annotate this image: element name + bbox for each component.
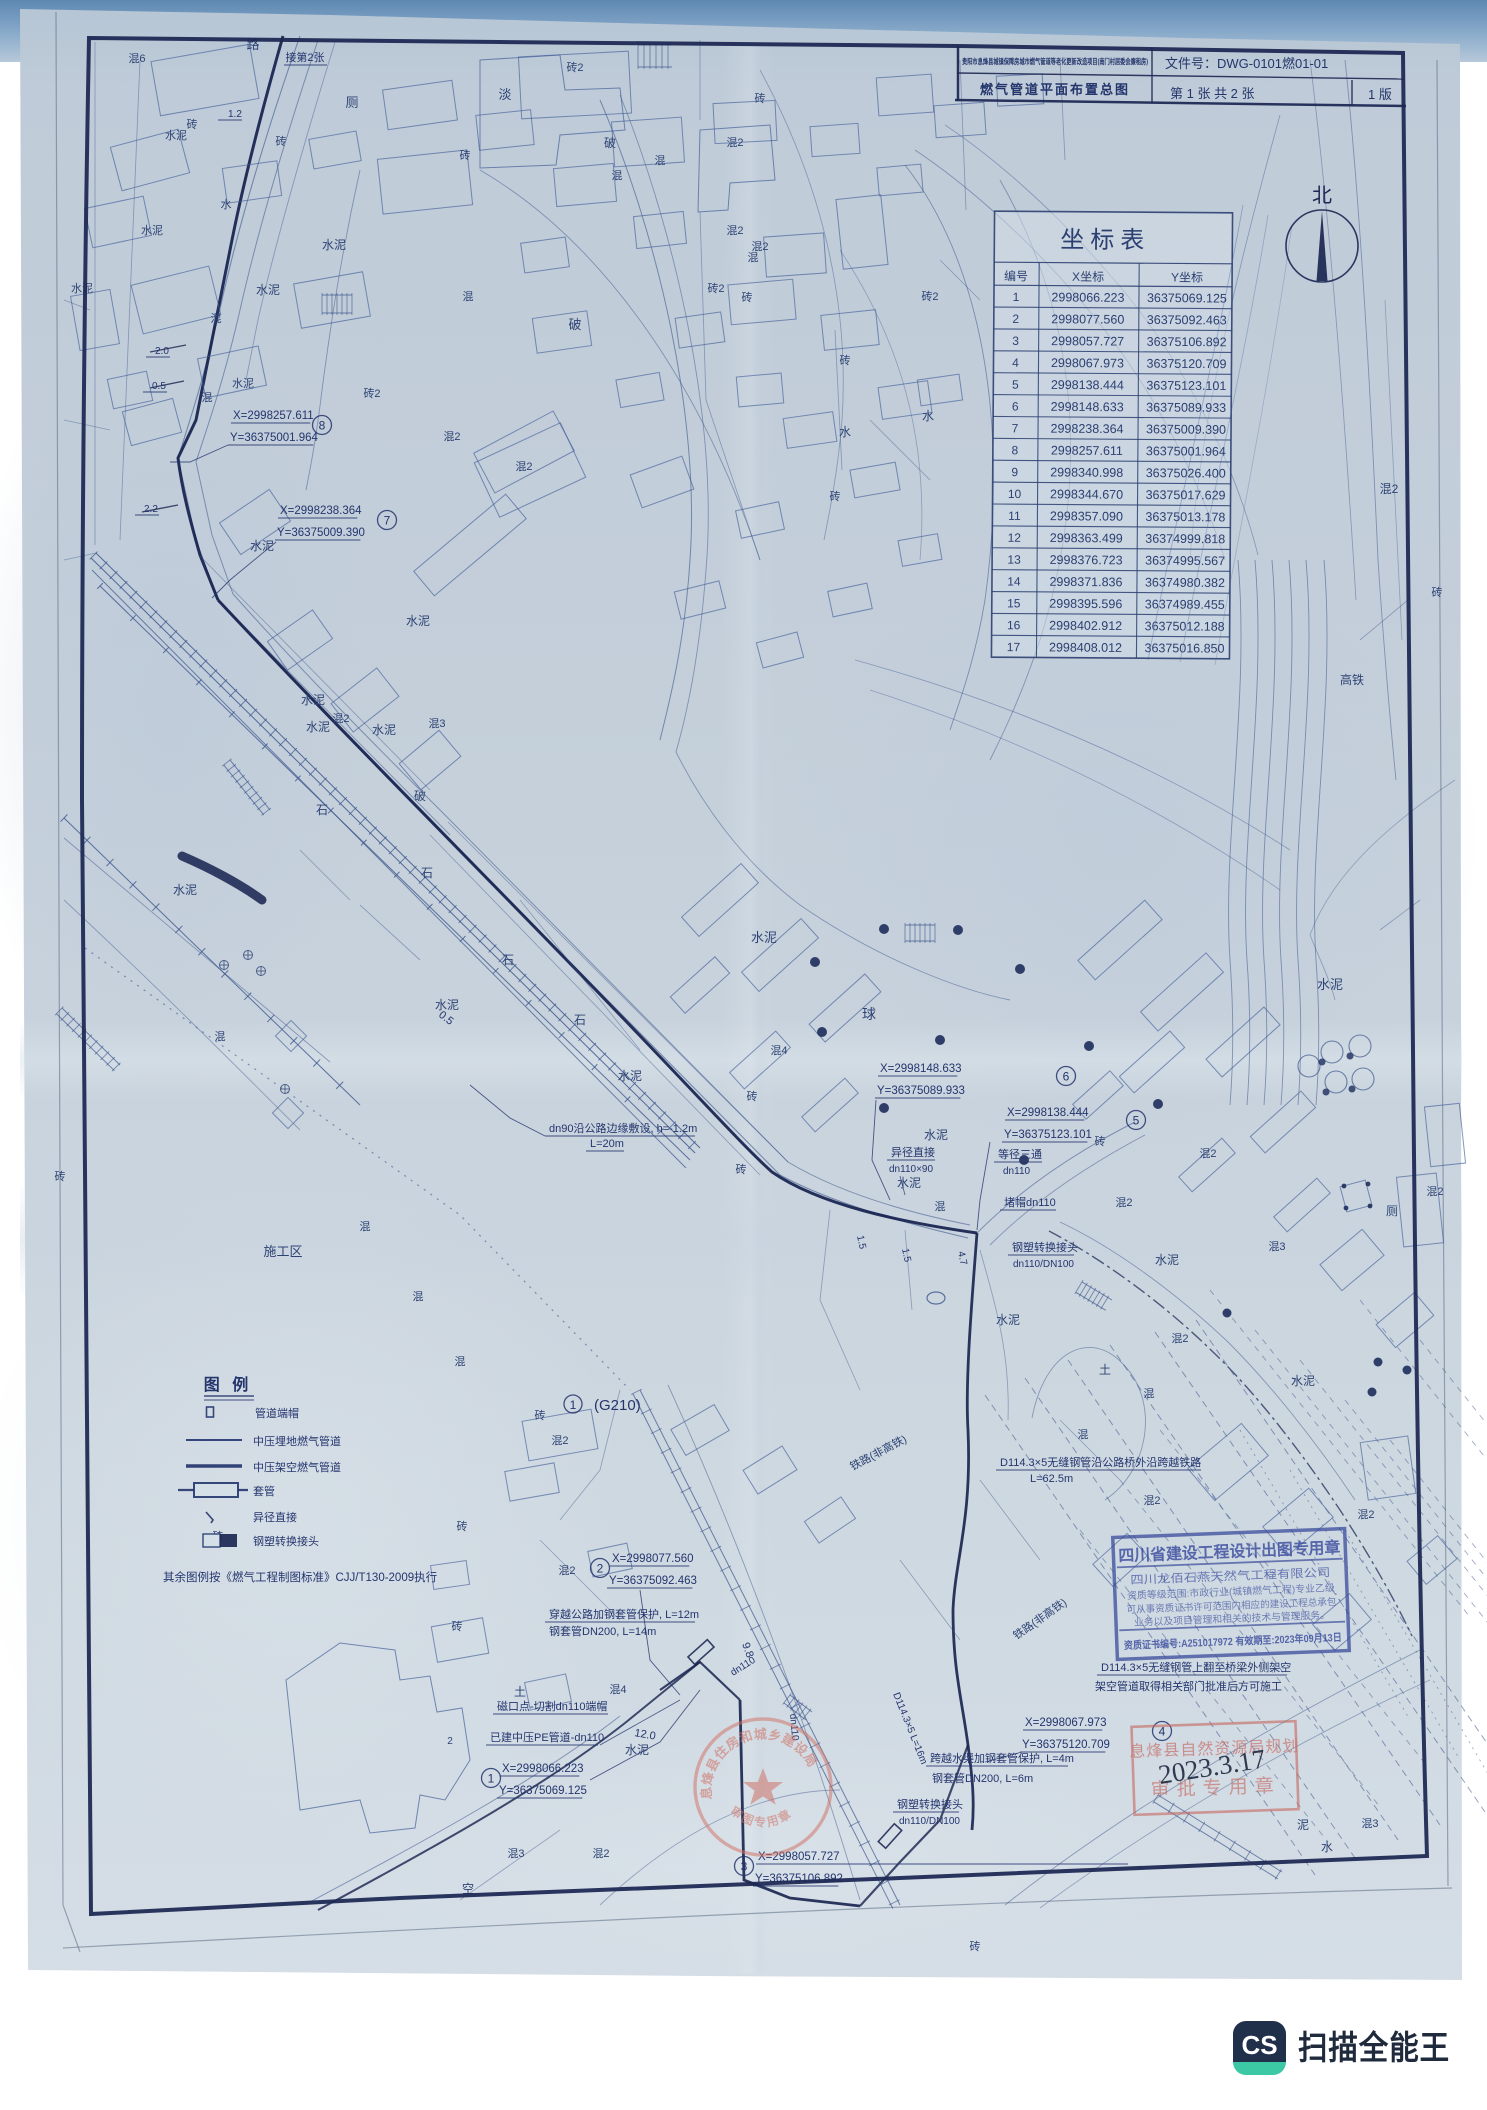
svg-text:X=2998066.223: X=2998066.223 xyxy=(502,1763,584,1775)
svg-text:2998408.012: 2998408.012 xyxy=(1049,640,1122,655)
svg-text:L=20m: L=20m xyxy=(590,1138,624,1150)
svg-text:8: 8 xyxy=(1011,443,1018,457)
svg-text:土: 土 xyxy=(1099,1363,1111,1377)
svg-text:混2: 混2 xyxy=(443,430,460,443)
svg-text:砖: 砖 xyxy=(755,91,766,105)
svg-text:厕: 厕 xyxy=(345,95,358,110)
svg-text:13: 13 xyxy=(1007,553,1021,567)
svg-text:1: 1 xyxy=(570,1398,577,1412)
svg-text:套管: 套管 xyxy=(253,1484,275,1498)
svg-text:X=2998057.727: X=2998057.727 xyxy=(758,1851,840,1863)
svg-text:Y=36375089.933: Y=36375089.933 xyxy=(877,1085,965,1097)
svg-text:文件号：DWG-0101燃01-01: 文件号：DWG-0101燃01-01 xyxy=(1165,56,1328,71)
svg-text:12: 12 xyxy=(1008,531,1022,545)
svg-text:钢塑转换接头: 钢塑转换接头 xyxy=(897,1797,963,1811)
svg-text:砖: 砖 xyxy=(452,1619,463,1633)
svg-text:混: 混 xyxy=(360,1220,371,1233)
svg-text:2998376.723: 2998376.723 xyxy=(1050,553,1123,568)
svg-text:36375012.188: 36375012.188 xyxy=(1145,619,1225,634)
svg-text:水泥: 水泥 xyxy=(256,283,280,297)
svg-text:2.2: 2.2 xyxy=(144,504,158,515)
svg-text:2998067.973: 2998067.973 xyxy=(1051,356,1124,371)
svg-text:2998371.836: 2998371.836 xyxy=(1049,575,1122,590)
svg-text:1.2: 1.2 xyxy=(228,109,242,120)
svg-text:跨越水渠加钢套管保护, L=4m: 跨越水渠加钢套管保护, L=4m xyxy=(930,1751,1074,1765)
svg-text:淡: 淡 xyxy=(498,87,511,102)
svg-text:2998257.611: 2998257.611 xyxy=(1051,444,1123,459)
svg-text:2998363.499: 2998363.499 xyxy=(1050,531,1123,546)
svg-text:已建中压PE管道-dn110: 已建中压PE管道-dn110 xyxy=(490,1730,604,1744)
svg-text:36374980.382: 36374980.382 xyxy=(1145,575,1225,590)
svg-text:2998238.364: 2998238.364 xyxy=(1050,422,1123,437)
svg-text:36375013.178: 36375013.178 xyxy=(1145,510,1225,525)
svg-text:10: 10 xyxy=(1008,487,1022,501)
svg-text:X=2998067.973: X=2998067.973 xyxy=(1025,1717,1107,1729)
svg-text:水: 水 xyxy=(922,409,934,423)
svg-text:混3: 混3 xyxy=(428,717,445,730)
svg-text:砖2: 砖2 xyxy=(707,281,724,295)
svg-text:磁口点-切割dn110端帽: 磁口点-切割dn110端帽 xyxy=(497,1699,607,1713)
svg-text:水泥: 水泥 xyxy=(232,377,254,390)
svg-text:7: 7 xyxy=(384,514,391,528)
svg-text:2998148.633: 2998148.633 xyxy=(1051,400,1124,415)
svg-text:水泥: 水泥 xyxy=(141,224,163,237)
svg-text:架空管道取得相关部门批准后方可施工: 架空管道取得相关部门批准后方可施工 xyxy=(1095,1679,1282,1693)
svg-text:水泥: 水泥 xyxy=(372,723,396,737)
svg-text:砖: 砖 xyxy=(535,1408,546,1422)
svg-text:6: 6 xyxy=(1012,399,1019,413)
svg-text:36375001.964: 36375001.964 xyxy=(1146,444,1226,459)
svg-text:36375009.390: 36375009.390 xyxy=(1146,422,1226,437)
svg-text:0.5: 0.5 xyxy=(152,381,166,392)
svg-text:混2: 混2 xyxy=(515,460,532,473)
svg-text:其余图例按《燃气工程制图标准》CJJ/T130-2009执行: 其余图例按《燃气工程制图标准》CJJ/T130-2009执行 xyxy=(163,1570,437,1584)
svg-text:砖: 砖 xyxy=(970,1939,981,1953)
svg-text:水泥: 水泥 xyxy=(173,883,197,897)
svg-text:14: 14 xyxy=(1007,574,1021,588)
svg-text:砖: 砖 xyxy=(1095,1134,1106,1148)
svg-text:砖2: 砖2 xyxy=(566,60,583,74)
svg-text:土: 土 xyxy=(514,1685,526,1699)
svg-text:管道端帽: 管道端帽 xyxy=(255,1406,299,1420)
svg-text:混: 混 xyxy=(1078,1428,1089,1441)
svg-text:坐标表: 坐标表 xyxy=(1060,227,1150,255)
svg-text:水泥: 水泥 xyxy=(71,282,93,295)
svg-text:2998395.596: 2998395.596 xyxy=(1049,597,1122,612)
svg-text:7: 7 xyxy=(1012,421,1019,435)
svg-text:5: 5 xyxy=(1012,378,1019,392)
svg-text:水泥: 水泥 xyxy=(301,693,325,707)
svg-text:水: 水 xyxy=(221,198,232,211)
svg-text:8: 8 xyxy=(319,419,326,433)
svg-text:水泥: 水泥 xyxy=(322,238,346,252)
svg-text:贵阳市息烽县城镇保障房城市燃气管道等老化更新改造项目(南门村: 贵阳市息烽县城镇保障房城市燃气管道等老化更新改造项目(南门村居委会廉租房) xyxy=(962,57,1148,66)
svg-text:dn110: dn110 xyxy=(1003,1166,1031,1177)
svg-text:混2: 混2 xyxy=(726,224,743,237)
svg-text:砖: 砖 xyxy=(55,1169,66,1183)
svg-text:水泥: 水泥 xyxy=(751,930,777,945)
svg-text:2998138.444: 2998138.444 xyxy=(1051,378,1124,393)
svg-text:X=2998148.633: X=2998148.633 xyxy=(880,1063,962,1075)
svg-text:混: 混 xyxy=(463,290,474,303)
svg-text:混2: 混2 xyxy=(751,240,768,253)
svg-text:高铁: 高铁 xyxy=(1340,672,1364,687)
svg-text:36374989.455: 36374989.455 xyxy=(1145,597,1225,612)
svg-text:混2: 混2 xyxy=(726,136,743,149)
svg-text:钢塑转换接头: 钢塑转换接头 xyxy=(1012,1240,1078,1254)
svg-text:混2: 混2 xyxy=(558,1564,575,1577)
svg-text:砖: 砖 xyxy=(830,489,841,503)
svg-text:2998077.560: 2998077.560 xyxy=(1051,312,1124,327)
svg-text:混: 混 xyxy=(211,312,222,325)
svg-text:1: 1 xyxy=(1013,290,1020,304)
svg-text:中压埋地燃气管道: 中压埋地燃气管道 xyxy=(253,1434,341,1448)
svg-text:砖2: 砖2 xyxy=(363,386,380,400)
svg-text:Y=36375069.125: Y=36375069.125 xyxy=(499,1785,587,1797)
svg-text:穿越公路加钢套管保护, L=12m: 穿越公路加钢套管保护, L=12m xyxy=(549,1607,699,1621)
svg-text:X=2998238.364: X=2998238.364 xyxy=(280,505,362,517)
svg-text:Y=36375001.964: Y=36375001.964 xyxy=(230,432,319,444)
svg-text:混: 混 xyxy=(455,1355,466,1368)
svg-text:水泥: 水泥 xyxy=(306,720,330,734)
svg-text:3: 3 xyxy=(741,1860,748,1874)
svg-text:混: 混 xyxy=(655,154,666,167)
svg-text:泥: 泥 xyxy=(1297,1818,1309,1832)
svg-text:混: 混 xyxy=(1144,1387,1155,1400)
svg-text:砖: 砖 xyxy=(460,148,471,162)
svg-text:异径直接: 异径直接 xyxy=(253,1510,297,1524)
svg-text:混3: 混3 xyxy=(1361,1817,1378,1830)
svg-text:11: 11 xyxy=(1008,509,1021,523)
svg-text:中压架空燃气管道: 中压架空燃气管道 xyxy=(253,1460,341,1474)
svg-text:36375120.709: 36375120.709 xyxy=(1146,357,1226,372)
svg-text:16: 16 xyxy=(1007,618,1021,632)
svg-text:球: 球 xyxy=(862,1006,876,1022)
svg-text:混: 混 xyxy=(612,169,623,182)
svg-text:混: 混 xyxy=(215,1030,226,1043)
svg-text:混3: 混3 xyxy=(1268,1240,1285,1253)
svg-text:砖: 砖 xyxy=(276,134,287,148)
svg-text:9: 9 xyxy=(1011,465,1018,479)
svg-text:X坐标: X坐标 xyxy=(1072,270,1104,284)
svg-text:Y=36375092.463: Y=36375092.463 xyxy=(609,1575,697,1587)
svg-text:扫描全能王: 扫描全能王 xyxy=(1298,2029,1450,2066)
svg-text:水泥: 水泥 xyxy=(406,614,430,628)
svg-text:混3: 混3 xyxy=(507,1847,524,1860)
svg-text:Y=36375123.101: Y=36375123.101 xyxy=(1004,1129,1092,1141)
svg-text:水泥: 水泥 xyxy=(1291,1374,1315,1388)
svg-text:5: 5 xyxy=(1133,1114,1140,1128)
svg-text:X=2998138.444: X=2998138.444 xyxy=(1007,1107,1089,1119)
svg-text:L=62.5m: L=62.5m xyxy=(1030,1473,1073,1485)
svg-text:2998357.090: 2998357.090 xyxy=(1050,509,1123,524)
svg-text:2998057.727: 2998057.727 xyxy=(1051,334,1124,349)
svg-text:水泥: 水泥 xyxy=(996,1313,1020,1327)
svg-text:厕: 厕 xyxy=(1386,1204,1398,1218)
svg-text:混2: 混2 xyxy=(551,1434,568,1447)
svg-text:混: 混 xyxy=(935,1200,946,1213)
svg-text:砖: 砖 xyxy=(1432,585,1443,599)
svg-text:混6: 混6 xyxy=(128,52,145,65)
svg-text:第 1 张 共 2 张: 第 1 张 共 2 张 xyxy=(1170,86,1255,101)
svg-text:混2: 混2 xyxy=(1171,1332,1188,1345)
svg-text:dn110×90: dn110×90 xyxy=(889,1164,933,1175)
svg-text:破: 破 xyxy=(604,135,616,150)
svg-text:堵帽dn110: 堵帽dn110 xyxy=(1004,1195,1056,1209)
svg-text:36375069.125: 36375069.125 xyxy=(1147,291,1227,306)
svg-text:砖: 砖 xyxy=(187,117,198,131)
svg-text:1 版: 1 版 xyxy=(1368,87,1392,102)
svg-text:6: 6 xyxy=(1063,1070,1070,1084)
svg-text:水泥: 水泥 xyxy=(924,1128,948,1142)
svg-text:17: 17 xyxy=(1007,640,1021,654)
svg-text:Y坐标: Y坐标 xyxy=(1171,270,1203,284)
svg-text:2: 2 xyxy=(597,1562,604,1576)
svg-text:2.0: 2.0 xyxy=(155,346,169,357)
svg-text:36375089.933: 36375089.933 xyxy=(1146,400,1226,415)
svg-text:2: 2 xyxy=(1012,312,1019,326)
svg-text:异径直接: 异径直接 xyxy=(891,1145,935,1159)
svg-text:混2: 混2 xyxy=(1357,1508,1374,1521)
svg-text:石: 石 xyxy=(316,803,328,817)
svg-text:混2: 混2 xyxy=(592,1847,609,1860)
svg-text:砖: 砖 xyxy=(840,353,851,367)
svg-text:Y=36375120.709: Y=36375120.709 xyxy=(1022,1739,1110,1751)
svg-text:36374995.567: 36374995.567 xyxy=(1145,554,1225,569)
svg-text:图 例: 图 例 xyxy=(204,1375,252,1394)
svg-text:编号: 编号 xyxy=(1004,268,1028,283)
svg-text:钢塑转换接头: 钢塑转换接头 xyxy=(253,1534,319,1548)
svg-text:36374999.818: 36374999.818 xyxy=(1145,532,1225,547)
svg-text:水泥: 水泥 xyxy=(165,129,187,142)
svg-text:36375026.400: 36375026.400 xyxy=(1146,466,1226,481)
svg-text:砖2: 砖2 xyxy=(921,289,938,303)
svg-text:混2: 混2 xyxy=(332,712,349,725)
svg-text:石: 石 xyxy=(421,866,433,880)
svg-text:混2: 混2 xyxy=(1115,1196,1132,1209)
svg-text:36375123.101: 36375123.101 xyxy=(1146,379,1226,394)
svg-text:1: 1 xyxy=(488,1772,495,1786)
svg-text:砖: 砖 xyxy=(457,1519,468,1533)
svg-text:dn110/DN100: dn110/DN100 xyxy=(1013,1259,1074,1270)
svg-text:dn90沿公路边缘敷设, h=-1.2m: dn90沿公路边缘敷设, h=-1.2m xyxy=(549,1121,697,1135)
svg-text:钢套管DN200, L=6m: 钢套管DN200, L=6m xyxy=(932,1771,1033,1785)
svg-text:混2: 混2 xyxy=(1143,1494,1160,1507)
svg-text:2998402.912: 2998402.912 xyxy=(1049,619,1122,634)
svg-text:施工区: 施工区 xyxy=(263,1244,302,1259)
svg-text:砖: 砖 xyxy=(747,1089,758,1103)
svg-text:破: 破 xyxy=(414,788,426,803)
svg-text:水: 水 xyxy=(1321,1840,1333,1854)
svg-text:15: 15 xyxy=(1007,596,1021,610)
svg-text:混: 混 xyxy=(413,1290,424,1303)
svg-text:水泥: 水泥 xyxy=(1317,977,1343,992)
svg-text:破: 破 xyxy=(568,317,581,332)
svg-text:混2: 混2 xyxy=(1426,1185,1443,1198)
svg-text:混4: 混4 xyxy=(770,1044,787,1057)
svg-text:CS: CS xyxy=(1241,2030,1277,2060)
svg-text:36375092.463: 36375092.463 xyxy=(1147,313,1227,328)
svg-text:4: 4 xyxy=(1012,356,1019,370)
svg-text:等径三通: 等径三通 xyxy=(998,1147,1042,1161)
svg-text:Y=36375009.390: Y=36375009.390 xyxy=(277,527,365,539)
svg-text:石: 石 xyxy=(574,1013,586,1027)
svg-text:2998340.998: 2998340.998 xyxy=(1050,465,1123,480)
svg-text:水泥: 水泥 xyxy=(250,539,274,553)
svg-text:(G210): (G210) xyxy=(594,1397,641,1414)
svg-text:X=2998257.611: X=2998257.611 xyxy=(233,410,314,422)
svg-text:混: 混 xyxy=(202,391,213,404)
svg-text:砖: 砖 xyxy=(736,1162,747,1176)
svg-text:水泥: 水泥 xyxy=(1155,1253,1179,1267)
svg-text:36375016.850: 36375016.850 xyxy=(1144,641,1224,656)
svg-text:D114.3×5无缝钢管沿公路桥外沿跨越铁路: D114.3×5无缝钢管沿公路桥外沿跨越铁路 xyxy=(1000,1455,1201,1469)
svg-text:X=2998077.560: X=2998077.560 xyxy=(612,1553,694,1565)
svg-text:接第2张: 接第2张 xyxy=(285,50,324,64)
svg-text:混2: 混2 xyxy=(1380,482,1399,496)
svg-text:水: 水 xyxy=(839,425,851,439)
svg-text:钢套管DN200, L=14m: 钢套管DN200, L=14m xyxy=(549,1624,656,1638)
svg-text:水泥: 水泥 xyxy=(435,998,459,1012)
svg-text:2998344.670: 2998344.670 xyxy=(1050,487,1123,502)
svg-text:dn110/DN100: dn110/DN100 xyxy=(899,1816,960,1827)
svg-text:混2: 混2 xyxy=(1199,1147,1216,1160)
svg-text:北: 北 xyxy=(1312,184,1332,207)
svg-text:砖: 砖 xyxy=(742,290,753,304)
svg-text:3: 3 xyxy=(1012,334,1019,348)
svg-text:D114.3×5无缝钢管上翻至桥梁外侧架空: D114.3×5无缝钢管上翻至桥梁外侧架空 xyxy=(1101,1660,1291,1674)
svg-text:2: 2 xyxy=(447,1736,453,1747)
svg-text:燃气管道平面布置总图: 燃气管道平面布置总图 xyxy=(980,82,1130,97)
svg-text:2998066.223: 2998066.223 xyxy=(1051,290,1124,305)
svg-text:石: 石 xyxy=(502,953,514,967)
svg-text:混4: 混4 xyxy=(609,1683,626,1696)
svg-text:水泥: 水泥 xyxy=(618,1069,642,1083)
